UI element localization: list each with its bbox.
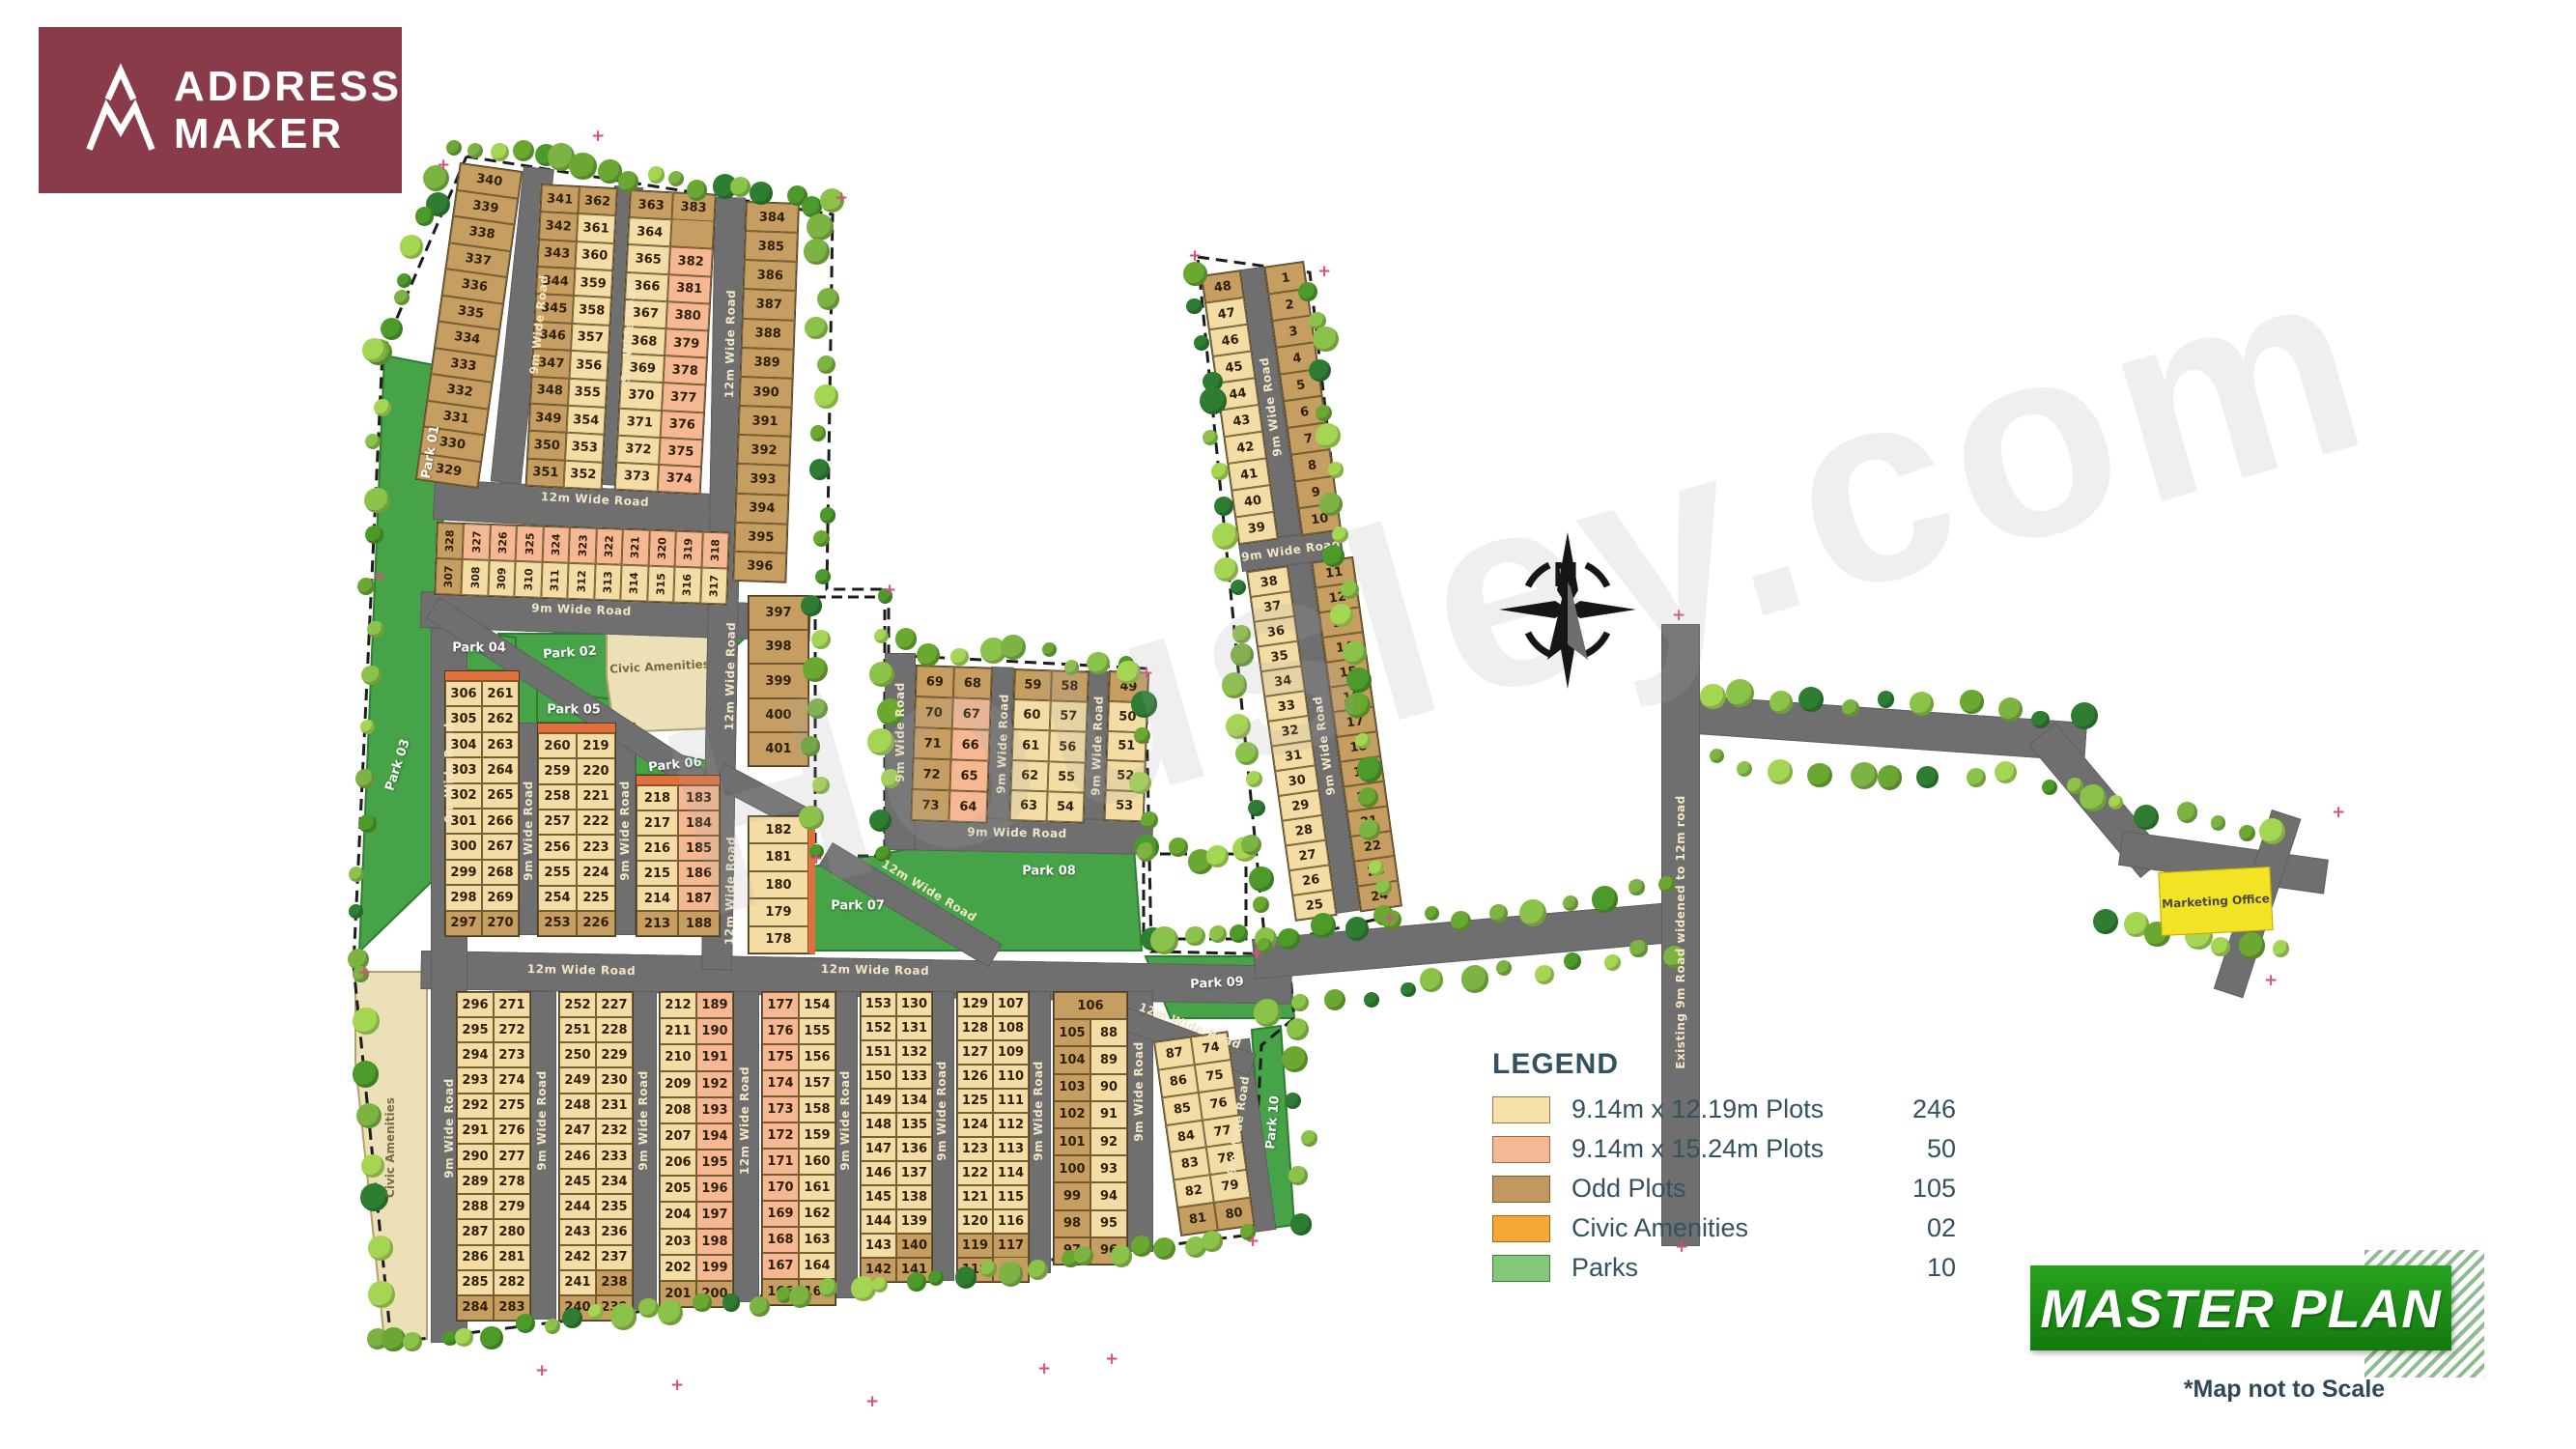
plot-cell: 315 [647, 566, 675, 603]
legend-swatch-green [1492, 1255, 1550, 1282]
legend-count: 105 [1888, 1174, 1956, 1204]
plot-cell: 269 [482, 885, 519, 910]
plot-cell: 167 [762, 1253, 799, 1279]
tree-icon [349, 867, 364, 882]
plot-cell: 321 [622, 529, 650, 566]
plot-cell: 222 [577, 810, 615, 835]
plot-cell: 183 [678, 785, 720, 810]
plot-cell: 187 [678, 886, 720, 911]
plot-cell: 294 [457, 1042, 494, 1067]
tree-icon [1042, 642, 1057, 657]
plot-cell: 259 [538, 758, 577, 783]
plot-cell: 55 [1048, 761, 1086, 793]
tree-icon [1285, 1093, 1301, 1109]
tree-icon [394, 290, 410, 305]
plot-cell: 162 [799, 1201, 835, 1227]
plot-cell: 280 [494, 1219, 530, 1244]
survey-cross-icon: + [535, 1363, 549, 1379]
plot-cell: 270 [482, 911, 519, 936]
plot-cell: 296 [457, 992, 494, 1017]
plot-cell: 382 [668, 247, 712, 276]
tree-icon [1700, 684, 1725, 709]
tree-icon [895, 628, 917, 649]
tree-icon [1290, 1213, 1312, 1235]
tree-icon [1420, 968, 1444, 992]
tree-icon [814, 384, 838, 409]
plot-cell: 401 [749, 732, 808, 766]
tree-icon [1564, 952, 1581, 970]
plot-cell: 385 [745, 231, 798, 262]
plot-cell: 374 [658, 465, 701, 494]
plot-cell: 254 [538, 886, 577, 911]
plot-cell: 380 [666, 301, 710, 330]
tree-icon [2134, 805, 2159, 830]
plot-cell: 306 [445, 681, 482, 706]
plot-cell: 163 [799, 1227, 835, 1253]
tree-icon [811, 630, 831, 649]
tree-icon [1064, 660, 1079, 674]
tree-icon [750, 1296, 769, 1316]
plot-cell: 136 [896, 1137, 932, 1161]
plot-cell: 181 [749, 843, 808, 870]
plot-cell: 117 [993, 1234, 1029, 1258]
plot-cell: 191 [696, 1044, 733, 1070]
tree-icon [562, 1308, 582, 1328]
road-label: 9m Wide Road [618, 781, 632, 880]
plot-cell: 377 [662, 383, 705, 412]
tree-icon [1324, 989, 1345, 1010]
plot-cell: 195 [696, 1150, 733, 1176]
survey-cross-icon: + [373, 569, 386, 585]
survey-cross-icon: + [883, 582, 896, 599]
tree-icon [1206, 845, 1229, 867]
plot-cell: 395 [734, 523, 787, 554]
tree-icon [867, 728, 894, 755]
plot-cell: 153 [861, 992, 896, 1016]
plot-cell: 286 [457, 1245, 494, 1270]
tree-icon [361, 666, 382, 686]
tree-icon [480, 1326, 502, 1349]
legend-count: 50 [1888, 1134, 1956, 1164]
plot-cell: 216 [637, 836, 678, 861]
plot-cell: 235 [596, 1194, 633, 1219]
plot-cell: 223 [577, 835, 615, 860]
plot-cell: 373 [615, 463, 659, 492]
tree-icon [1489, 904, 1508, 923]
tree-icon [812, 777, 830, 794]
plot-cell: 193 [696, 1097, 733, 1123]
tree-icon [1322, 545, 1345, 567]
survey-cross-icon: + [1250, 946, 1263, 962]
tree-icon [1230, 924, 1248, 943]
tree-icon [397, 273, 411, 288]
plot-cell: 295 [457, 1017, 494, 1042]
plot-cell: 217 [637, 810, 678, 836]
tree-icon [1311, 913, 1336, 938]
plot-cell: 273 [494, 1042, 530, 1067]
plot-cell: 226 [577, 911, 615, 936]
plot-cell: 285 [457, 1270, 494, 1295]
plot-cell: 311 [541, 562, 569, 599]
plot-cell: 152 [861, 1016, 896, 1040]
plot-cell: 202 [660, 1255, 696, 1281]
legend-swatch-salmon [1492, 1136, 1550, 1163]
plot-cell: 255 [538, 860, 577, 885]
survey-cross-icon: + [2264, 973, 2278, 989]
plot-cell: 180 [749, 871, 808, 898]
tree-icon [1291, 994, 1309, 1011]
plot-cell: 196 [696, 1176, 733, 1202]
park-edge-strip [538, 724, 615, 733]
plot-cell: 299 [445, 860, 482, 885]
plot-cell: 132 [896, 1040, 932, 1065]
park-label: Park 09 [1190, 975, 1244, 992]
plot-block-GE: 1531301521311511321501331491341481351471… [860, 991, 933, 1283]
plot-cell: 88 [1090, 1019, 1127, 1046]
tree-icon [1995, 761, 2017, 783]
tree-icon [1074, 1246, 1093, 1265]
plot-block-GB: 2522272512282502292492302482312472322462… [558, 991, 634, 1321]
tree-icon [1235, 742, 1259, 765]
tree-icon [1246, 771, 1262, 787]
brand-line2: MAKER [174, 110, 402, 157]
plot-cell: 203 [660, 1229, 696, 1255]
legend-swatch-brown [1492, 1176, 1550, 1203]
plot-cell: 400 [749, 698, 808, 732]
plot-cell: 362 [578, 186, 616, 215]
tree-icon [789, 1286, 811, 1308]
plot-cell: 264 [482, 757, 519, 782]
plot-cell: 365 [627, 244, 670, 273]
plot-cell: 67 [952, 697, 991, 729]
plot-block-B49a: 69687067716672657364 [910, 665, 993, 824]
plot-cell: 89 [1090, 1046, 1127, 1073]
tree-icon [1150, 926, 1178, 954]
plot-block-P06: 218183217184216185215186214187213188 [636, 775, 721, 937]
plot-cell: 206 [660, 1150, 696, 1176]
plot-cell: 397 [749, 596, 808, 630]
park-label: Park 05 [547, 703, 601, 718]
plot-cell: 244 [559, 1194, 596, 1219]
plot-cell: 228 [596, 1017, 633, 1042]
plot-cell: 272 [494, 1017, 530, 1042]
tree-icon [648, 166, 665, 183]
plot-cell: 197 [696, 1202, 733, 1228]
tree-icon [1287, 1018, 1309, 1040]
plot-block-P05: 2602192592202582212572222562232552242542… [537, 723, 616, 937]
tree-icon [722, 1293, 740, 1311]
plot-cell: 160 [799, 1149, 835, 1175]
plot-cell: 352 [564, 460, 603, 489]
tree-icon [2211, 815, 2225, 830]
plot-cell: 121 [957, 1185, 993, 1209]
plot-cell: 127 [957, 1040, 993, 1065]
tree-icon [955, 1266, 977, 1288]
survey-cross-icon: + [1140, 666, 1153, 682]
legend-count: 10 [1888, 1253, 1956, 1283]
plot-cell: 342 [539, 212, 578, 241]
tree-icon [803, 657, 828, 682]
plot-cell: 212 [660, 992, 696, 1018]
survey-cross-icon: + [1037, 1361, 1051, 1378]
tree-icon [513, 140, 534, 161]
plot-cell: 355 [568, 378, 607, 407]
plot-cell: 146 [861, 1161, 896, 1185]
tree-icon [1910, 692, 1934, 716]
road-label: 12m Wide Road [821, 962, 930, 978]
plot-cell: 236 [596, 1219, 633, 1244]
park-label: Park 08 [1022, 865, 1076, 879]
tree-icon [360, 720, 375, 734]
tree-icon [980, 1261, 996, 1276]
plot-cell: 322 [595, 528, 623, 565]
tree-icon [368, 1236, 393, 1261]
tree-icon [999, 1262, 1024, 1287]
plot-cell: 390 [740, 377, 793, 408]
plot-cell: 399 [749, 664, 808, 697]
tree-icon [1214, 557, 1238, 582]
plot-cell: 356 [570, 351, 609, 380]
plot-cell: 262 [482, 706, 519, 731]
tree-icon [1519, 899, 1546, 926]
plot-cell: 394 [735, 493, 788, 524]
plot-cell: 178 [749, 926, 808, 953]
plot-cell: 207 [660, 1123, 696, 1150]
plot-cell: 371 [618, 408, 662, 437]
plot-cell: 396 [733, 552, 786, 582]
plot-cell: 92 [1090, 1128, 1127, 1155]
plot-cell: 263 [482, 732, 519, 757]
tree-icon [1249, 867, 1274, 892]
tree-icon [361, 1154, 384, 1178]
tree-icon [801, 736, 821, 756]
plot-cell: 237 [596, 1245, 633, 1270]
tree-icon [1358, 787, 1378, 808]
tree-icon [817, 288, 839, 310]
road-label: 9m Wide Road [637, 1070, 650, 1170]
legend: LEGEND 9.14m x 12.19m Plots 246 9.14m x … [1492, 1048, 1956, 1293]
survey-cross-icon: + [591, 128, 605, 145]
tree-icon [618, 171, 638, 191]
legend-label: Odd Plots [1571, 1174, 1888, 1204]
plot-cell: 234 [596, 1169, 633, 1194]
tree-icon [1282, 1046, 1308, 1072]
plot-cell: 387 [743, 289, 796, 320]
plot-cell: 59 [1014, 669, 1052, 701]
plot-cell: 238 [596, 1270, 633, 1295]
tree-icon [400, 235, 424, 259]
tree-icon [1254, 999, 1282, 1027]
plot-cell: 257 [538, 810, 577, 835]
survey-cross-icon: + [1672, 608, 1685, 624]
plot-cell: 391 [739, 406, 792, 437]
survey-cross-icon: + [1188, 248, 1202, 265]
survey-cross-icon: + [1246, 1234, 1260, 1250]
plot-cell: 103 [1054, 1074, 1090, 1101]
road-label: Existing 9m Road widened to 12m road [1674, 795, 1687, 1069]
tree-icon [1211, 463, 1229, 480]
plot-cell: 102 [1054, 1101, 1090, 1128]
road-label: 12m Wide Road [527, 962, 637, 978]
plot-cell: 155 [799, 1018, 835, 1044]
plot-cell: 260 [538, 733, 577, 758]
tree-icon [1967, 768, 1986, 787]
plot-block-B49b: 59586057615662556354 [1008, 668, 1089, 824]
tree-icon [820, 507, 835, 523]
tree-icon [1425, 906, 1439, 921]
plot-cell: 323 [569, 527, 597, 564]
plot-cell: 119 [957, 1234, 993, 1258]
plot-cell: 158 [799, 1096, 835, 1122]
plot-cell: 268 [482, 860, 519, 885]
road-label: 9m Wide Road [442, 723, 456, 822]
tree-icon [2211, 937, 2230, 956]
plot-cell: 277 [494, 1144, 530, 1169]
plot-cell: 98 [1054, 1210, 1090, 1237]
plot-cell: 169 [762, 1201, 799, 1227]
plot-cell: 168 [762, 1227, 799, 1253]
plot-cell: 148 [861, 1113, 896, 1137]
plot-cell: 275 [494, 1094, 530, 1119]
park-edge-strip [637, 776, 720, 785]
tree-icon [668, 171, 684, 186]
legend-title: LEGEND [1492, 1048, 1956, 1081]
plot-block-C397: 397398399400401 [748, 595, 809, 767]
plot-cell: 126 [957, 1065, 993, 1089]
plot-cell: 290 [457, 1144, 494, 1169]
tree-icon [1186, 298, 1202, 314]
plot-cell: 205 [660, 1176, 696, 1202]
survey-cross-icon: + [809, 851, 823, 867]
plot-cell: 252 [559, 992, 596, 1017]
tree-icon [1604, 954, 1621, 971]
plot-cell: 100 [1054, 1155, 1090, 1182]
tree-icon [1185, 926, 1204, 946]
plot-cell: 208 [660, 1097, 696, 1123]
tree-icon [1592, 886, 1619, 913]
survey-cross-icon: + [437, 157, 450, 174]
road-label: 12m Wide Road [722, 622, 738, 731]
plot-cell: 274 [494, 1067, 530, 1093]
tree-icon [358, 814, 377, 833]
plot-cell: 308 [462, 559, 490, 596]
plot-cell: 125 [957, 1089, 993, 1113]
tree-icon [1241, 835, 1261, 855]
tree-icon [1309, 359, 1331, 382]
marketing-office: Marketing Office [2158, 867, 2273, 936]
plot-cell: 173 [762, 1096, 799, 1122]
plot-cell: 93 [1090, 1155, 1127, 1182]
plot-cell: 109 [993, 1040, 1029, 1065]
plot-cell: 143 [861, 1234, 896, 1258]
tree-icon [805, 317, 828, 340]
tree-icon [1401, 982, 1415, 997]
tree-icon [1111, 1245, 1133, 1267]
plot-cell: 271 [494, 992, 530, 1017]
plot-cell: 372 [616, 435, 660, 464]
plot-cell: 124 [957, 1113, 993, 1137]
tree-icon [2239, 932, 2266, 959]
plot-cell: 316 [673, 567, 701, 604]
plot-cell: 122 [957, 1161, 993, 1185]
plot-cell: 157 [799, 1070, 835, 1096]
plot-cell: 72 [912, 758, 950, 790]
tree-icon [1878, 691, 1894, 707]
plot-cell: 95 [1090, 1210, 1127, 1237]
plot-cell: 170 [762, 1175, 799, 1201]
plot-cell: 310 [515, 561, 543, 598]
plot-cell: 361 [577, 213, 615, 242]
plot-cell: 389 [741, 348, 794, 379]
survey-cross-icon: + [1383, 911, 1397, 927]
plot-cell: 115 [993, 1185, 1029, 1209]
legend-item: Parks 10 [1492, 1253, 1956, 1283]
road-label: 9m Wide Road [522, 781, 535, 880]
plot-cell: 184 [678, 810, 720, 836]
plot-cell: 101 [1054, 1128, 1090, 1155]
plot-cell: 69 [916, 666, 954, 697]
plot-cell: 313 [594, 564, 622, 601]
tree-icon [1137, 842, 1155, 861]
road-label: 9m Wide Road [442, 1078, 456, 1178]
plot-cell: 225 [577, 886, 615, 911]
tree-icon [804, 239, 830, 265]
plot-cell: 174 [762, 1070, 799, 1096]
tree-icon [1628, 879, 1644, 895]
tree-icon [1253, 896, 1269, 913]
tree-icon [1316, 423, 1341, 448]
plot-cell: 150 [861, 1065, 896, 1089]
plot-cell: 107 [993, 992, 1029, 1016]
plot-cell: 130 [896, 992, 932, 1016]
tree-icon [1375, 879, 1392, 895]
plot-cell: 39 [1235, 512, 1278, 544]
plot-cell: 213 [637, 911, 678, 936]
tree-icon [730, 177, 750, 197]
plot-cell: 386 [744, 260, 797, 291]
tree-icon [367, 621, 383, 638]
plot-block-GA: 2962712952722942732932742922752912762902… [456, 991, 531, 1321]
plot-cell: 288 [457, 1194, 494, 1219]
plot-cell: 90 [1090, 1074, 1127, 1101]
plot-cell: 375 [659, 438, 702, 467]
plot-cell: 66 [951, 728, 990, 760]
plot-cell: 351 [526, 458, 565, 487]
tree-icon [1313, 327, 1339, 353]
scale-note: *Map not to Scale [2125, 1376, 2444, 1404]
legend-count: 02 [1888, 1213, 1956, 1243]
plot-cell: 281 [494, 1245, 530, 1270]
legend-item: Odd Plots 105 [1492, 1174, 1956, 1204]
tree-icon [1131, 691, 1157, 717]
tree-icon [1798, 687, 1824, 712]
plot-cell: 65 [949, 759, 988, 791]
plot-cell: 398 [749, 630, 808, 664]
mountain-logo-icon [85, 49, 156, 171]
plot-cell: 175 [762, 1044, 799, 1070]
plot-cell: 319 [675, 531, 703, 568]
plot-cell: 176 [762, 1018, 799, 1044]
legend-swatch-beige [1492, 1096, 1550, 1123]
plot-cell: 116 [993, 1209, 1029, 1234]
tree-icon [1960, 690, 1983, 713]
legend-label: Parks [1571, 1253, 1888, 1283]
plot-cell: 57 [1050, 701, 1088, 733]
tree-icon [353, 1008, 380, 1035]
plot-cell: 353 [565, 433, 604, 462]
tree-icon [455, 1328, 472, 1346]
tree-icon [1212, 523, 1239, 550]
